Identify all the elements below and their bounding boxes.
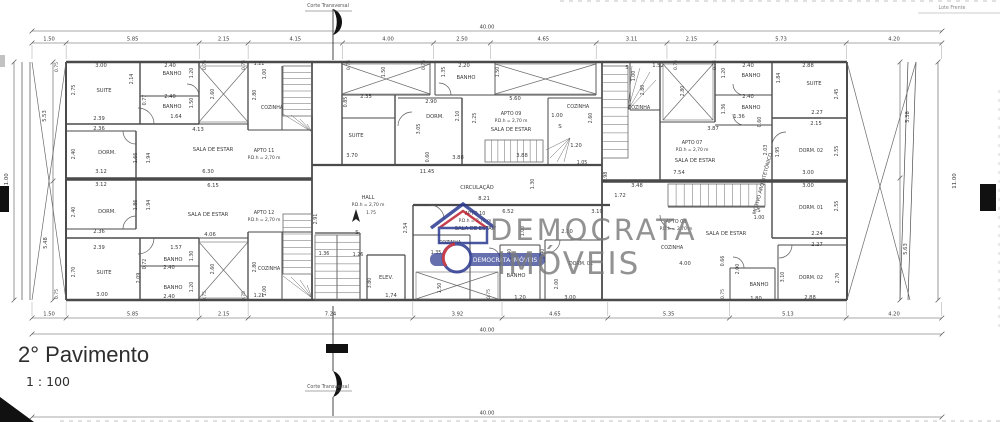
plan-label: BANHO (163, 104, 182, 110)
plan-label: SUITE (96, 88, 111, 94)
plan-label: COZINHA (261, 105, 284, 111)
plan-label: DORM. 02 (799, 148, 823, 154)
stairs (602, 66, 628, 158)
site-note-label: Lote Frente (939, 5, 966, 11)
plan-label: 3.10 (591, 209, 603, 215)
right-edge-mark (980, 184, 996, 211)
plan-label: 1.64 (170, 114, 182, 120)
door-arc (772, 132, 786, 146)
section-cut-bar (326, 344, 348, 353)
plan-label: BANHO (457, 75, 476, 81)
plan-label: 1.20 (514, 295, 526, 301)
plan-label: DORM. (426, 114, 444, 120)
plan-label: 1.50 (495, 67, 501, 78)
lot-brace (847, 62, 916, 300)
stair-winder (300, 280, 312, 298)
plan-label: 2.10 (455, 111, 461, 122)
stair-winder (550, 138, 570, 158)
stair-winder (546, 138, 570, 150)
plan-label: 2.60 (210, 264, 216, 275)
plan-label: 2.27 (811, 242, 823, 248)
plan-label: 0.75 (54, 62, 60, 72)
plan-label: 2.40 (163, 265, 175, 271)
section-cut-arrow-icon (333, 371, 342, 397)
dimension-label: 3.92 (452, 311, 464, 317)
plan-label: 2.25 (472, 113, 478, 124)
title-block: 2° Pavimento 1 : 100 (18, 342, 149, 389)
plan-label: 4.06 (204, 232, 216, 238)
plan-label: 1.80 (750, 296, 762, 302)
plan-label: 1.72 (614, 193, 626, 199)
plan-label: DORM. (98, 209, 116, 215)
plan-label: 2.88 (802, 63, 814, 69)
plan-label: 1.50 (437, 283, 443, 294)
plan-label: 2.80 (252, 90, 258, 101)
drawing-scale: 1 : 100 (26, 374, 149, 389)
plan-label: 1.94 (146, 200, 152, 211)
plan-label: 1.66 (133, 153, 139, 164)
plan-label: 1.36 (319, 251, 330, 257)
plan-label: 1.36 (733, 114, 745, 120)
plan-label: 1.57 (170, 245, 182, 251)
plan-label: 0.75 (486, 289, 492, 299)
plan-label: BANHO (742, 105, 761, 111)
plan-label: 1.86 (133, 200, 139, 211)
plan-label: 3.48 (631, 183, 643, 189)
logo-banner-text: DEMOCRATA IMÓVEIS (473, 257, 538, 264)
door-arc (398, 112, 412, 126)
plan-label: 2.39 (93, 116, 105, 122)
plan-label: P.D.h = 2,70 m (352, 202, 385, 208)
plan-label: DORM. 01 (799, 205, 823, 211)
plan-label: 5.48 (43, 237, 49, 249)
plan-label: 3.12 (95, 169, 107, 175)
stairs (485, 140, 543, 162)
plan-label: 2.55 (834, 146, 840, 157)
plan-label: 2.14 (129, 74, 135, 85)
plan-label: 6.15 (207, 183, 219, 189)
plan-label: 2.40 (742, 63, 754, 69)
plan-label: S (355, 230, 359, 236)
plan-label: 0.72 (142, 259, 148, 270)
dimension-label: 5.35 (663, 311, 675, 317)
plan-label: 1.26 (353, 252, 364, 258)
stair-winder (557, 138, 570, 162)
plan-label: 0.75 (54, 289, 60, 299)
plan-label: 2.36 (93, 229, 105, 235)
plan-label: 7.54 (673, 170, 685, 176)
plan-label: 2.88 (804, 295, 816, 301)
plan-label: 2.60 (588, 113, 594, 124)
plan-label: 1.30 (189, 251, 195, 262)
plan-label: BANHO (164, 285, 183, 291)
plan-label: 0.77 (142, 95, 148, 106)
plan-label: 0.98 (603, 172, 609, 183)
door-arc (123, 216, 136, 229)
plan-label: 0.75 (712, 60, 718, 70)
plan-label: 1.05 (577, 160, 588, 166)
plan-label: 5.60 (509, 96, 521, 102)
plan-label: 0.75 (202, 60, 208, 70)
plan-label: SALA DE ESTAR (188, 212, 229, 218)
plan-label: 2.40 (164, 63, 176, 69)
door-arc (439, 83, 451, 95)
corner-triangle-mark (0, 397, 34, 422)
plan-label: 0.75 (673, 60, 679, 70)
logo-house-inner-roof-icon (439, 211, 487, 228)
dimension-label: 7.24 (325, 311, 337, 317)
plan-label: 1.75 (366, 210, 376, 216)
plan-label: 3.88 (516, 153, 528, 159)
dimension-label: 2.15 (686, 36, 698, 42)
plan-label: 1.20 (189, 282, 195, 293)
plan-label: 1.52 (652, 63, 664, 69)
dimension-label: 4.65 (549, 311, 561, 317)
plan-label: 0.75 (202, 291, 208, 301)
section-marker-label: Corte Transversal (307, 3, 349, 9)
plan-label: 1.00 (631, 71, 637, 82)
plan-label: 4.00 (679, 261, 691, 267)
plan-label: SUITE (806, 81, 821, 87)
plan-label: 5.53 (42, 110, 48, 122)
plan-label: 1.30 (530, 179, 536, 190)
compass-icon (352, 209, 360, 222)
wall-line (908, 62, 916, 300)
plan-label: APTO 09 (501, 111, 522, 117)
plan-label: 2.27 (811, 110, 823, 116)
plan-label: SALA DE ESTAR (193, 147, 234, 153)
plan-label: COZINHA (258, 266, 281, 272)
plan-label: 11.00 (952, 173, 958, 189)
page-title: 2° Pavimento (18, 342, 149, 368)
plan-label: 0.75 (241, 291, 247, 301)
plan-label: DORM. (98, 150, 116, 156)
plan-label: 6.30 (202, 169, 214, 175)
plan-label: 2.00 (735, 264, 741, 275)
plan-label: 1.00 (262, 69, 268, 80)
plan-label: 0.75 (720, 289, 726, 299)
plan-label: APTO 07 (682, 140, 703, 146)
plan-label: 3.88 (452, 155, 464, 161)
plan-label: 1.00 (262, 286, 268, 297)
plan-label: SALA DE ESTAR (675, 158, 716, 164)
plan-label: COZINHA (567, 104, 590, 110)
plan-label: 3.80 (367, 278, 373, 289)
plan-label: 3.00 (802, 170, 814, 176)
plan-label: 2.40 (742, 94, 754, 100)
plan-label: 0.75 (241, 60, 247, 70)
plan-label: 1.20 (189, 68, 195, 79)
dimension-label: 1.50 (43, 36, 55, 42)
dimension-label: 40.00 (480, 24, 495, 30)
plan-label: 2.09 (136, 273, 142, 284)
plan-label: 5.38 (905, 111, 911, 123)
dimension-label: 5.85 (127, 311, 139, 317)
plan-label: 2.40 (164, 94, 176, 100)
plan-label: 3.00 (95, 63, 107, 69)
plan-label: P.D.h = 2,70 m (676, 147, 709, 153)
plan-label: 2.40 (71, 149, 77, 160)
plan-label: 2.10 (561, 229, 573, 235)
door-arc (187, 84, 199, 96)
dimension-label: 40.00 (480, 327, 495, 333)
dimension-label: 1.50 (43, 311, 55, 317)
plan-label: 2.15 (810, 121, 822, 127)
stair-winder (283, 114, 312, 132)
stair-winder (291, 277, 312, 298)
plan-label: 1.20 (721, 68, 727, 79)
plan-label: 0.66 (720, 256, 726, 267)
plan-label: 2.70 (835, 273, 841, 284)
stair-winder (564, 138, 570, 162)
plan-label: 3.05 (416, 124, 422, 135)
plan-label: 2.90 (425, 99, 437, 105)
dimension-label: 5.73 (775, 36, 787, 42)
plan-label: P.D.h = 2,70 m (660, 226, 693, 232)
plan-label: S (625, 65, 628, 71)
plan-label: COZINHA (661, 245, 684, 251)
dimension-label: 2.50 (456, 36, 468, 42)
plan-label: 1.94 (146, 153, 152, 164)
plan-label: P.D.h = 2,70 m (248, 155, 281, 161)
plan-label: 0.75 (421, 60, 427, 70)
left-edge-mark (0, 186, 9, 212)
plan-label: 1.20 (570, 143, 582, 149)
logo-house-body-icon (439, 228, 487, 243)
plan-label: HALL (362, 195, 375, 201)
plan-label: 0.75 (346, 60, 352, 70)
plan-label: CIRCULAÇÃO (460, 184, 494, 191)
dimension-label: 4.15 (290, 36, 302, 42)
plan-label: 0.85 (343, 97, 349, 108)
plan-label: ELEV. (379, 275, 393, 281)
plan-label: 4.13 (192, 127, 204, 133)
plan-label: SALA DE ESTAR (706, 231, 747, 237)
plan-label: 3.87 (707, 126, 719, 132)
plan-label: 2.55 (834, 201, 840, 212)
plan-label: 0.60 (757, 117, 763, 128)
plan-label: 2.60 (210, 89, 216, 100)
plan-label: DORM. 02 (799, 275, 823, 281)
plan-label: 3.00 (802, 183, 814, 189)
dimension-label: 2.15 (218, 36, 230, 42)
dimension-label: 4.20 (888, 36, 900, 42)
plan-label: 1,74 (385, 293, 397, 299)
plan-label: 2.24 (811, 231, 823, 237)
agency-logo: DEMOCRATA IMÓVEIS (425, 196, 550, 278)
dimension-label: 3.11 (626, 36, 638, 42)
dimension-label: 5.13 (782, 311, 794, 317)
plan-label: 1.21 (254, 61, 265, 67)
plan-label: P.D.h = 2,70 m (248, 217, 281, 223)
plan-label: 2.20 (458, 63, 470, 69)
plan-label: BANHO (742, 73, 761, 79)
plan-label: BANHO (164, 257, 183, 263)
plan-label: 2.75 (71, 85, 77, 96)
dimension-label: 2.15 (218, 311, 230, 317)
plan-label: 3.00 (564, 295, 576, 301)
dimension-label: 40.00 (480, 410, 495, 416)
plan-label: 1.50 (381, 67, 387, 78)
plan-label: 2.80 (680, 86, 686, 97)
plan-label: 2.54 (403, 223, 409, 234)
plan-label: 2.36 (93, 126, 105, 132)
section-marker-label: Corte Transversal (307, 384, 349, 390)
stair-winder (291, 115, 312, 132)
plan-label: 2.40 (71, 207, 77, 218)
plan-label: APTO 12 (254, 210, 275, 216)
dimension-label: 4.20 (888, 311, 900, 317)
wall-line (900, 62, 908, 300)
plan-label: 1.35 (441, 67, 447, 78)
plan-label: 5.63 (903, 243, 909, 255)
plan-label: APTO 11 (254, 148, 275, 154)
plan-label: 1.84 (776, 73, 782, 84)
plan-label: SALA DE ESTAR (491, 127, 532, 133)
plan-label: 1.00 (551, 113, 563, 119)
plan-label: APTO 08 (666, 219, 687, 225)
dimension-label: 4.65 (538, 36, 550, 42)
plan-label: COZINHA (628, 105, 651, 111)
plan-label: 0.60 (425, 152, 431, 163)
plan-label: 2.91 (313, 214, 319, 225)
plan-label: 2.00 (554, 279, 560, 290)
plan-label: 2.45 (834, 89, 840, 100)
plan-label: 11.45 (420, 169, 435, 175)
plan-label: 2.80 (640, 85, 646, 96)
stairs (283, 214, 312, 274)
plan-label: 2.70 (71, 267, 77, 278)
plan-label: 2.35 (360, 94, 372, 100)
plan-label: 3.10 (780, 272, 786, 283)
door-arc (779, 245, 792, 258)
lot-brace (847, 62, 910, 300)
plan-label: SUITE (348, 133, 363, 139)
plan-label: 3.70 (346, 153, 358, 159)
plan-label: DORM. 01 (569, 261, 593, 267)
plan-label: BANHO (163, 71, 182, 77)
plan-label: 1.00 (754, 215, 765, 221)
scan-artifact (0, 55, 5, 67)
door-arc (123, 131, 136, 144)
plan-label: 3.00 (96, 292, 108, 298)
plan-label: S (757, 208, 760, 214)
plan-label: BANHO (750, 282, 769, 288)
plan-label: 2.39 (93, 245, 105, 251)
plan-label: SUITE (96, 270, 111, 276)
logo-house-roof-icon (431, 204, 495, 228)
plan-label: 3.12 (95, 182, 107, 188)
plan-label: 2.40 (163, 294, 175, 300)
plan-label: P.D.h = 2,70 m (495, 118, 528, 124)
dimension-label: 5.85 (127, 36, 139, 42)
plan-label: 1.95 (775, 147, 781, 158)
plan-label: 1.50 (189, 98, 195, 109)
plan-label: S (558, 124, 562, 130)
dimension-label: 4.00 (382, 36, 394, 42)
plan-label: 1.36 (721, 104, 727, 115)
